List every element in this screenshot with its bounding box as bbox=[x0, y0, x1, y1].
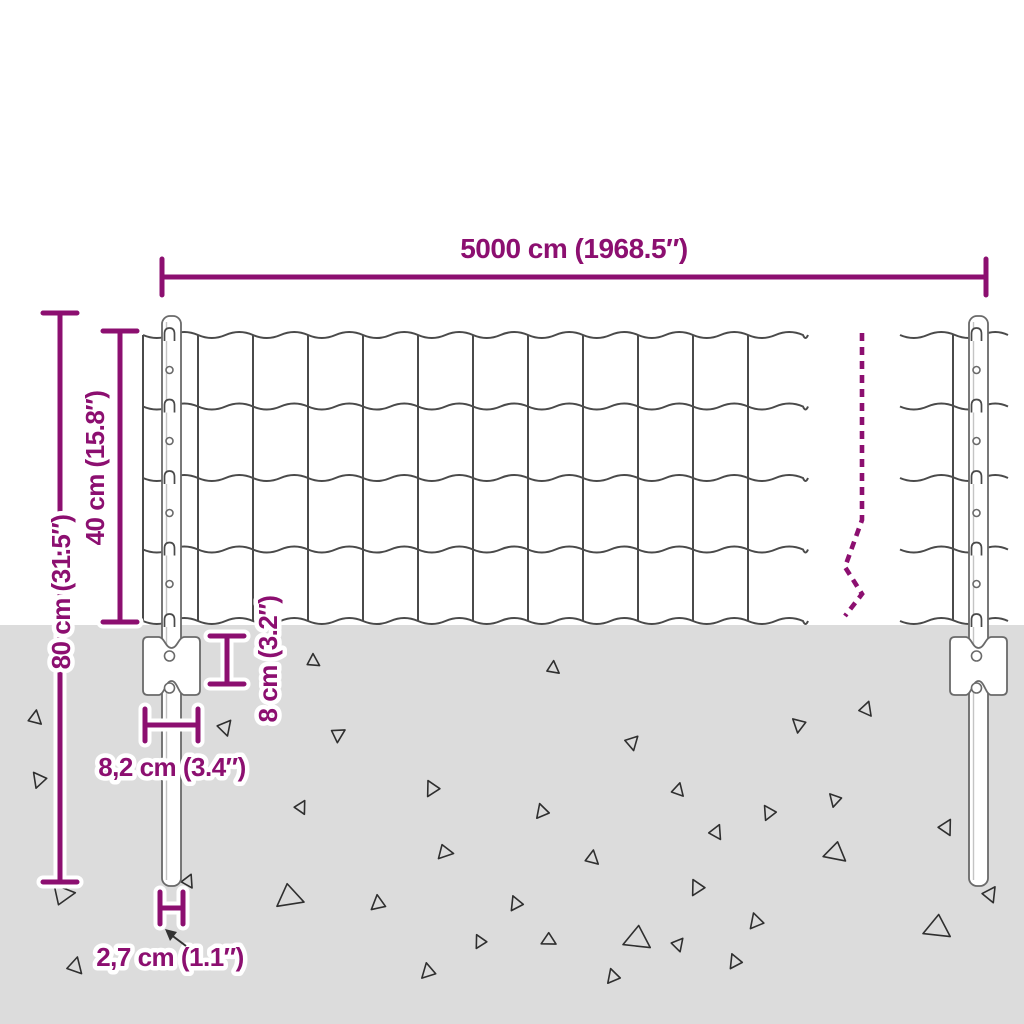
right-post-hole bbox=[973, 510, 980, 517]
left-anchor-plate-hole bbox=[165, 651, 175, 661]
left-post-hole bbox=[166, 510, 173, 517]
right-post-hole bbox=[973, 367, 980, 374]
dimension-mesh-height: 40 cm (15.8″) bbox=[80, 331, 137, 622]
right-post-wire-hook bbox=[972, 614, 982, 627]
label-total-height: 80 cm (31.5″) bbox=[46, 515, 76, 670]
right-post-hole bbox=[973, 438, 980, 445]
left-post-hole bbox=[166, 367, 173, 374]
mesh-horizontal-wire bbox=[143, 332, 808, 338]
left-post-wire-hook bbox=[165, 614, 175, 627]
right-anchor-plate-hole bbox=[972, 683, 982, 693]
fence-mesh bbox=[143, 332, 1008, 624]
fence-dimension-diagram: 5000 cm (1968.5″) 80 cm (31.5″) 40 cm (1… bbox=[0, 0, 1024, 1024]
left-post-wire-hook bbox=[165, 328, 175, 341]
left-post-hole bbox=[166, 438, 173, 445]
label-anchor-height: 8 cm (3.2″) bbox=[253, 596, 283, 723]
right-post-hole bbox=[973, 581, 980, 588]
right-post-wire-hook bbox=[972, 471, 982, 484]
panel-break-dashed-line bbox=[845, 333, 862, 616]
right-post-wire-hook bbox=[972, 543, 982, 556]
right-post-wire-hook bbox=[972, 328, 982, 341]
label-post-width: 2,7 cm (1.1″) bbox=[96, 942, 244, 972]
mesh-horizontal-wire bbox=[143, 404, 808, 410]
left-post-wire-hook bbox=[165, 400, 175, 413]
left-post-wire-hook bbox=[165, 543, 175, 556]
diagram-canvas: 5000 cm (1968.5″) 80 cm (31.5″) 40 cm (1… bbox=[0, 0, 1024, 1024]
dimension-total-width: 5000 cm (1968.5″) bbox=[162, 233, 986, 295]
dimension-line-total-width bbox=[162, 259, 986, 295]
left-anchor-plate-hole bbox=[165, 683, 175, 693]
left-post-wire-hook bbox=[165, 471, 175, 484]
left-post-hole bbox=[166, 581, 173, 588]
right-anchor-plate-hole bbox=[972, 651, 982, 661]
label-mesh-height: 40 cm (15.8″) bbox=[80, 391, 110, 546]
mesh-horizontal-wire bbox=[143, 618, 808, 624]
mesh-horizontal-wire bbox=[143, 475, 808, 481]
label-anchor-width: 8,2 cm (3.4″) bbox=[98, 752, 246, 782]
mesh-horizontal-wire bbox=[143, 547, 808, 553]
label-total-width: 5000 cm (1968.5″) bbox=[460, 233, 688, 264]
right-post-wire-hook bbox=[972, 400, 982, 413]
